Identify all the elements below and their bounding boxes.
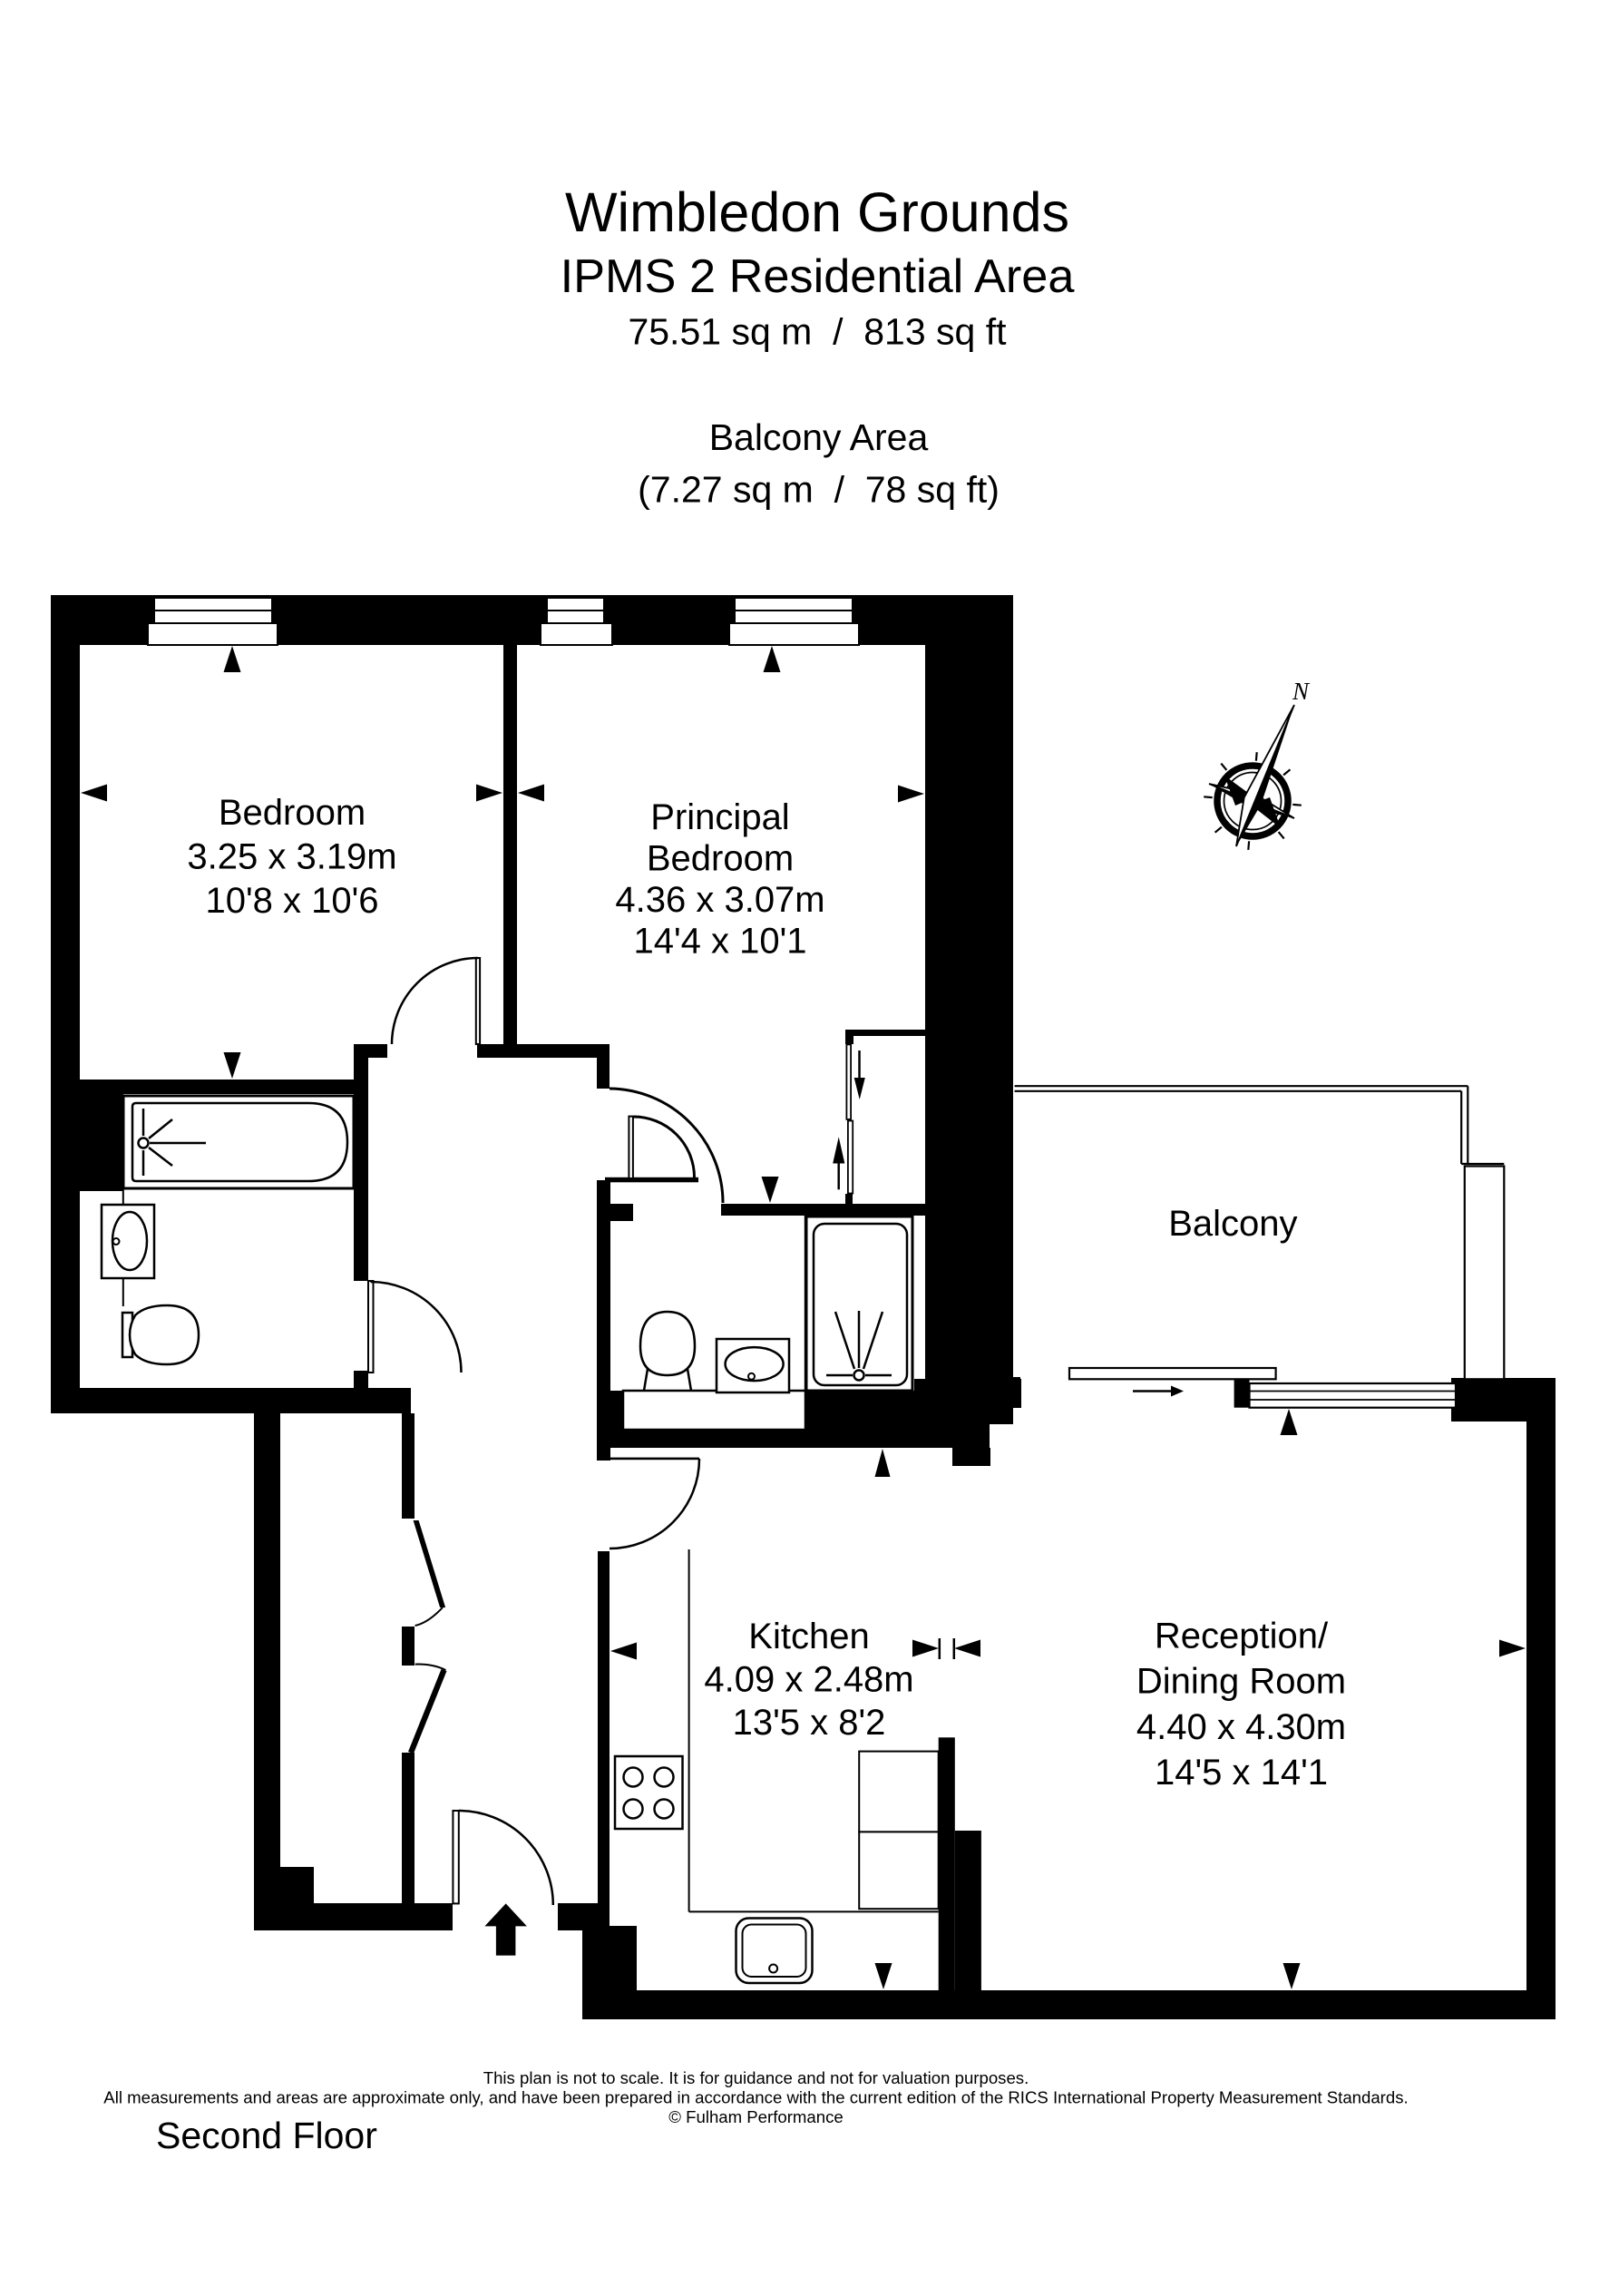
svg-text:Dining Room: Dining Room [1136,1662,1346,1702]
svg-text:Balcony: Balcony [1168,1204,1297,1244]
svg-text:Bedroom: Bedroom [647,839,794,879]
svg-text:N: N [1292,678,1311,705]
svg-text:4.40 x 4.30m: 4.40 x 4.30m [1136,1707,1346,1747]
svg-text:This plan is not to scale. It: This plan is not to scale. It is for gui… [483,2068,1029,2087]
svg-text:(7.27 sq m / 78 sq ft): (7.27 sq m / 78 sq ft) [638,469,1000,511]
svg-text:Second Floor: Second Floor [156,2115,377,2156]
svg-text:4.36 x 3.07m: 4.36 x 3.07m [615,880,824,920]
svg-text:3.25 x 3.19m: 3.25 x 3.19m [187,837,396,877]
svg-text:Wimbledon Grounds: Wimbledon Grounds [565,181,1069,243]
svg-text:10'8 x 10'6: 10'8 x 10'6 [206,881,379,921]
svg-text:13'5 x 8'2: 13'5 x 8'2 [733,1703,886,1743]
svg-text:4.09 x 2.48m: 4.09 x 2.48m [704,1660,913,1700]
svg-text:IPMS 2 Residential Area: IPMS 2 Residential Area [561,250,1076,303]
svg-text:Principal: Principal [650,797,789,837]
svg-text:75.51 sq m / 813 sq ft: 75.51 sq m / 813 sq ft [628,310,1007,352]
svg-text:© Fulham Performance: © Fulham Performance [668,2107,843,2126]
svg-text:Bedroom: Bedroom [219,793,366,833]
svg-text:Reception/: Reception/ [1155,1617,1329,1656]
svg-text:All measurements and areas are: All measurements and areas are approxima… [103,2088,1408,2107]
svg-text:14'5 x 14'1: 14'5 x 14'1 [1155,1753,1328,1793]
svg-text:Kitchen: Kitchen [748,1617,869,1656]
svg-text:Balcony Area: Balcony Area [709,416,929,458]
svg-text:14'4 x 10'1: 14'4 x 10'1 [634,922,807,962]
